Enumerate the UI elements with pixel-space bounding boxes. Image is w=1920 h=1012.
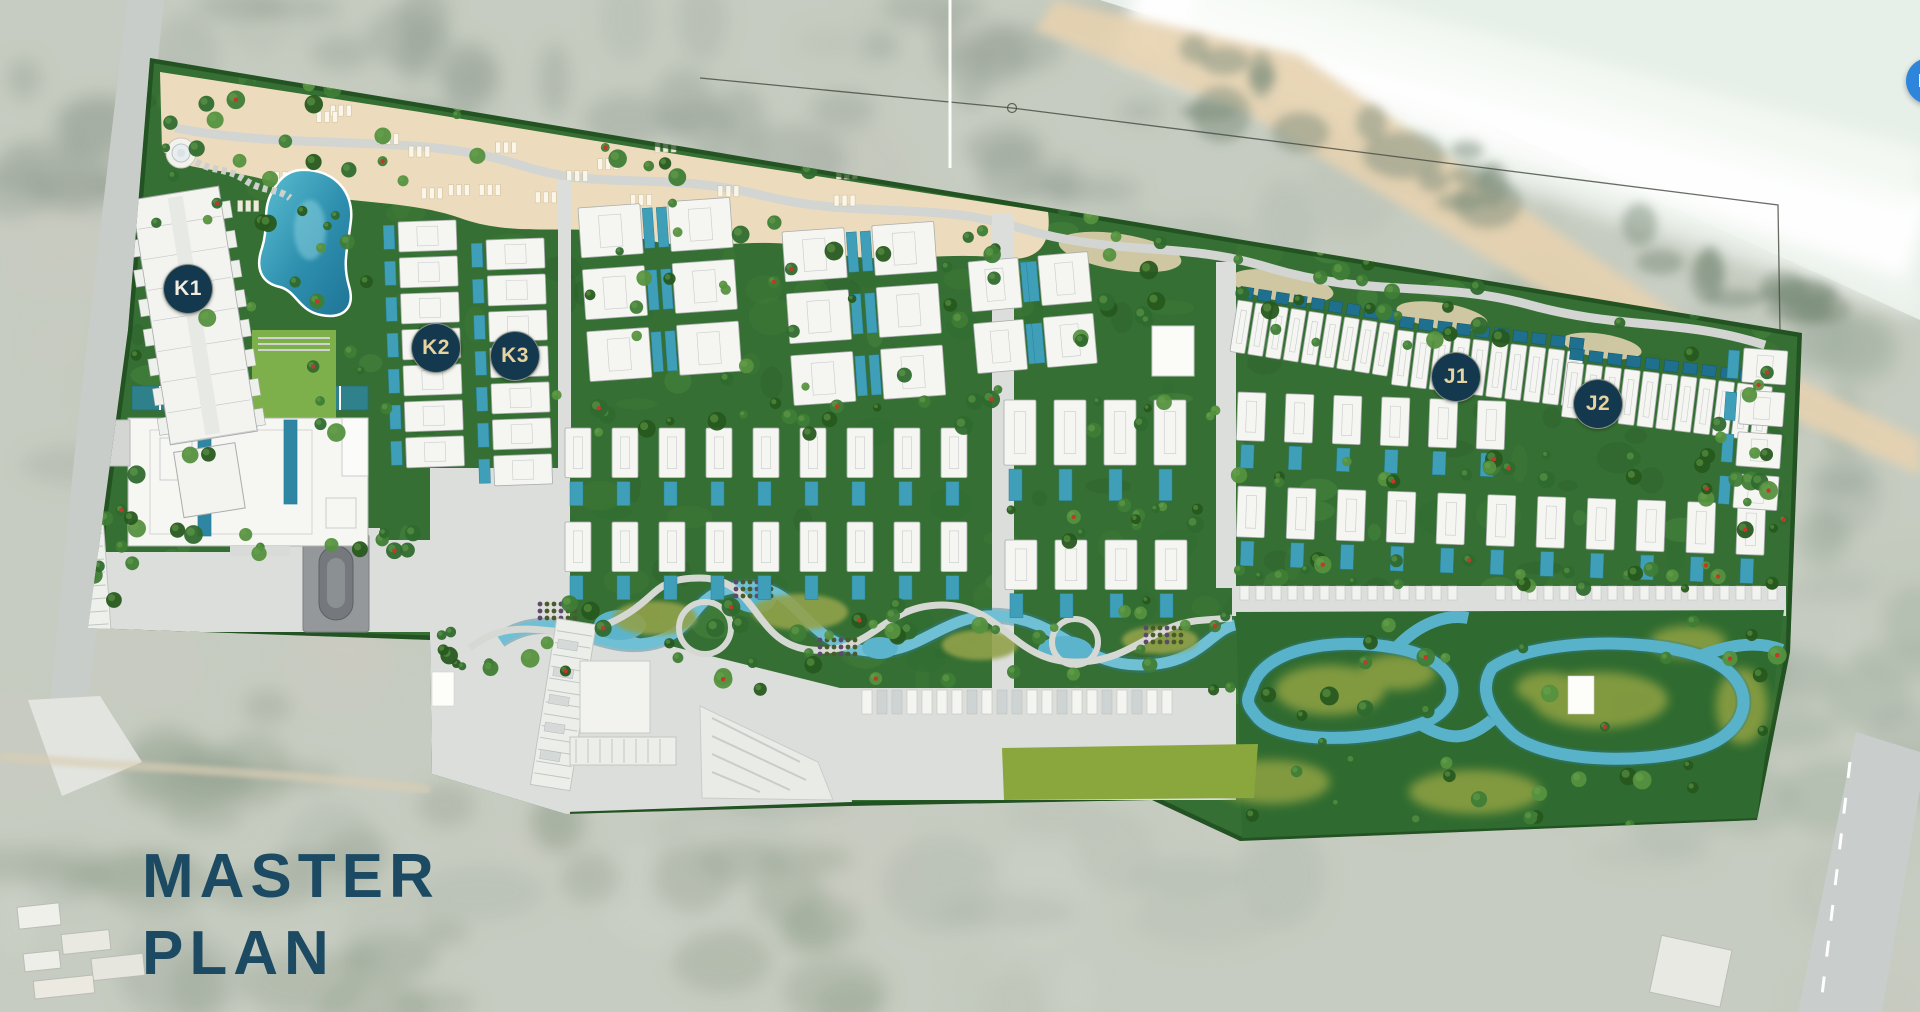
zone-badge-j1[interactable]: J1 xyxy=(1431,352,1481,402)
label-placeholder xyxy=(1568,676,1594,714)
title-line-1: MASTER xyxy=(142,842,440,911)
page-title: MASTER PLAN xyxy=(142,838,440,992)
event-lawn xyxy=(1002,744,1258,800)
label-placeholder xyxy=(432,672,454,706)
zone-badge-j2[interactable]: J2 xyxy=(1573,379,1623,429)
title-line-2: PLAN xyxy=(142,919,335,988)
zone-badge-k1[interactable]: K1 xyxy=(163,264,213,314)
service-building xyxy=(580,661,650,733)
zone-badge-k3[interactable]: K3 xyxy=(490,331,540,381)
zone-badge-k2[interactable]: K2 xyxy=(411,323,461,373)
master-plan-screenshot: K1K2K3J1J2 MASTER PLAN xyxy=(0,0,1920,1012)
chat-bubble-icon xyxy=(1906,58,1920,104)
chat-button[interactable] xyxy=(1906,58,1920,104)
